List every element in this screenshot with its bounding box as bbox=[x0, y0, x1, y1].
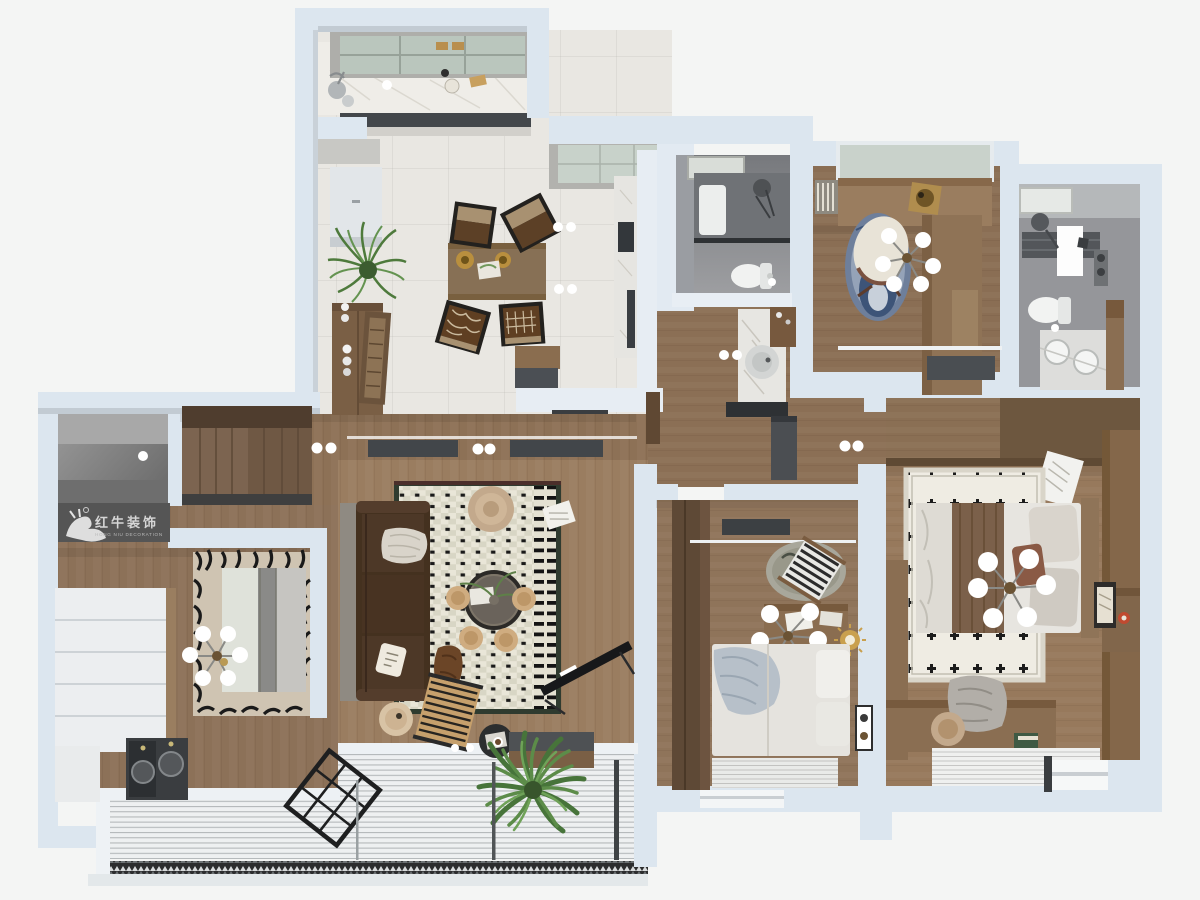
svg-text:红牛装饰: 红牛装饰 bbox=[95, 515, 159, 530]
svg-text:HONG NIU DECORATION: HONG NIU DECORATION bbox=[95, 532, 163, 537]
